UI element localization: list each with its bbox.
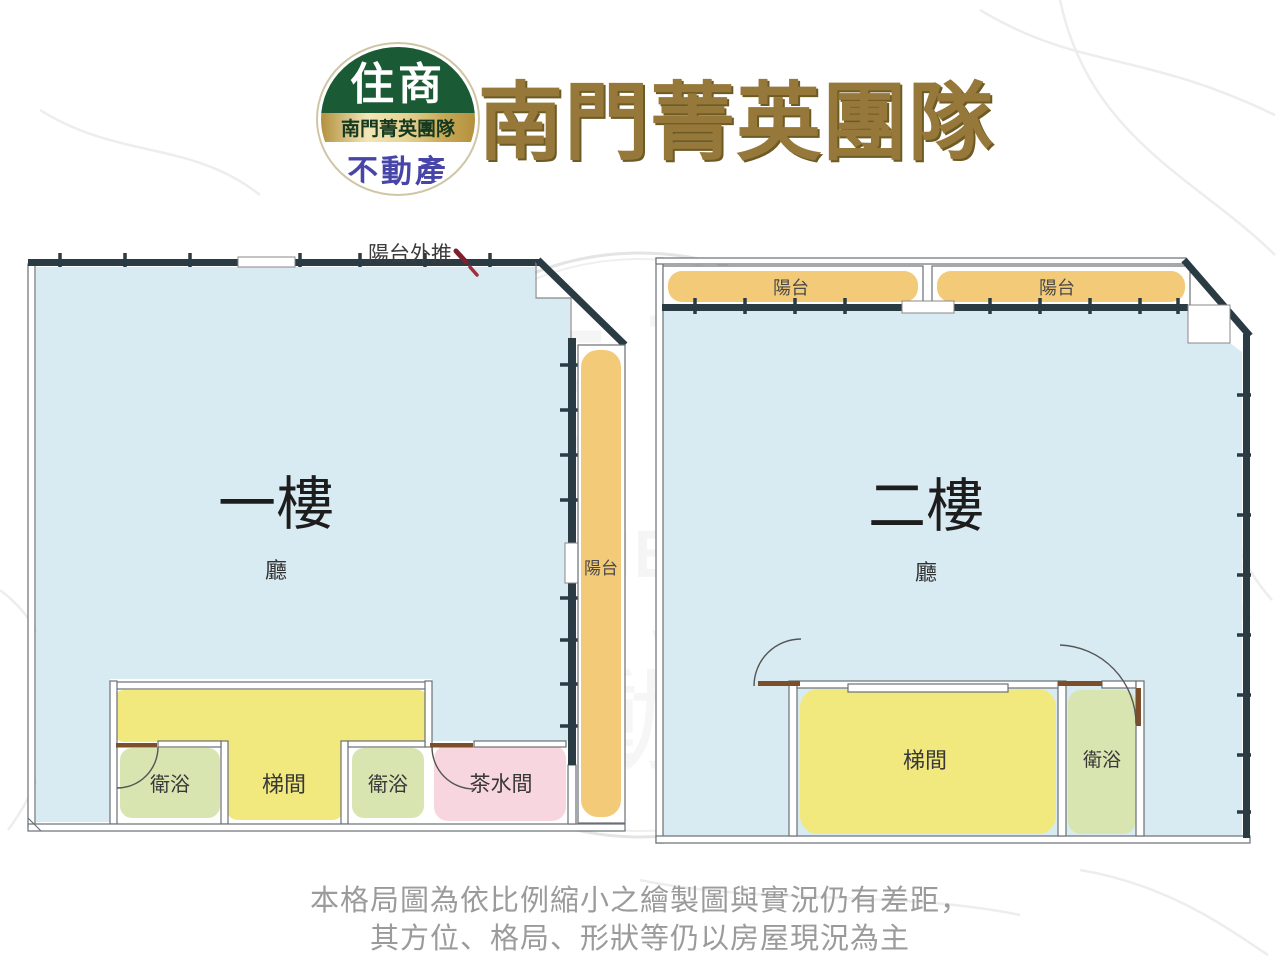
floor2-bath-label: 衛浴	[1083, 749, 1121, 771]
logo-green-section: 住商	[321, 47, 475, 113]
floor2-balcony-right-label: 陽台	[1039, 278, 1075, 298]
floor2-corner-notch	[1188, 305, 1230, 343]
floor1-bath-right-label: 衛浴	[368, 773, 408, 796]
floor2-hall-label: 廳	[915, 560, 937, 585]
logo-bottom-text: 不動產	[347, 146, 449, 191]
page-title: 南門菁英團隊	[478, 54, 998, 164]
logo-band-text: 南門菁英團隊	[341, 114, 455, 141]
logo-gold-band: 南門菁英團隊	[321, 113, 475, 142]
floor1-plan: 陽台外推 一樓 廳 衛浴 梯間 衛浴 茶水間 陽台	[28, 242, 625, 831]
floor1-bath-left-label: 衛浴	[150, 773, 190, 796]
floor2-stairwell-label: 梯間	[903, 748, 947, 773]
floor1-hall-label: 廳	[265, 558, 287, 583]
floor2-balcony-left-label: 陽台	[773, 278, 809, 298]
disclaimer-line2: 其方位、格局、形狀等仍以房屋現況為主	[160, 920, 1120, 958]
floor1-balcony-label: 陽台	[584, 559, 618, 578]
floor1-balcony-area	[578, 345, 625, 823]
floor1-tea-room-label: 茶水間	[470, 772, 533, 796]
disclaimer: 本格局圖為依比例縮小之繪製圖與實況仍有差距， 其方位、格局、形狀等仍以房屋現況為…	[160, 882, 1120, 958]
logo-top-text: 住商	[350, 48, 446, 112]
floor2-title: 二樓	[868, 474, 984, 539]
floor-plan-page: 住商 南門菁英團隊 不動產	[0, 0, 1280, 960]
disclaimer-line1: 本格局圖為依比例縮小之繪製圖與實況仍有差距，	[160, 882, 1120, 920]
logo-white-section: 不動產	[321, 142, 475, 191]
agency-logo: 住商 南門菁英團隊 不動產	[318, 44, 478, 194]
floor1-title: 一樓	[218, 472, 334, 537]
floor2-plan: 二樓 廳 陽台 陽台 梯間 衛浴	[656, 258, 1251, 843]
floor1-stairwell-label: 梯間	[262, 772, 306, 797]
floor1-annotation-label: 陽台外推	[368, 242, 452, 266]
